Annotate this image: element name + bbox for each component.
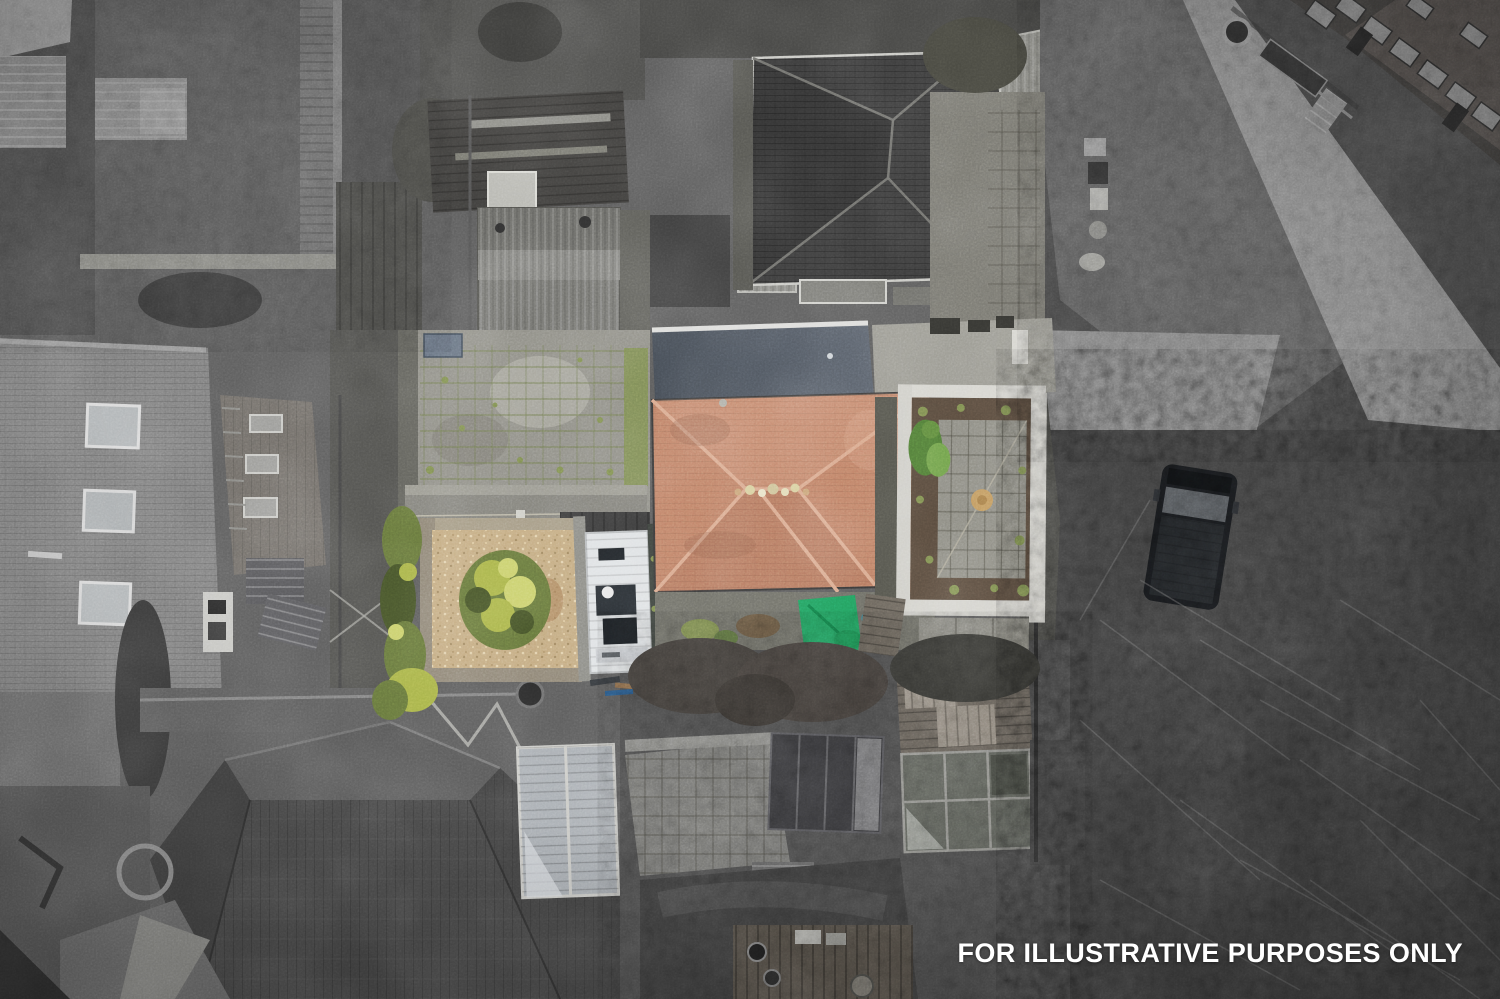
watermark-text: FOR ILLUSTRATIVE PURPOSES ONLY (957, 938, 1463, 969)
aerial-drone-photo: FOR ILLUSTRATIVE PURPOSES ONLY (0, 0, 1500, 999)
aerial-scene (0, 0, 1500, 999)
vignette (0, 0, 1500, 999)
